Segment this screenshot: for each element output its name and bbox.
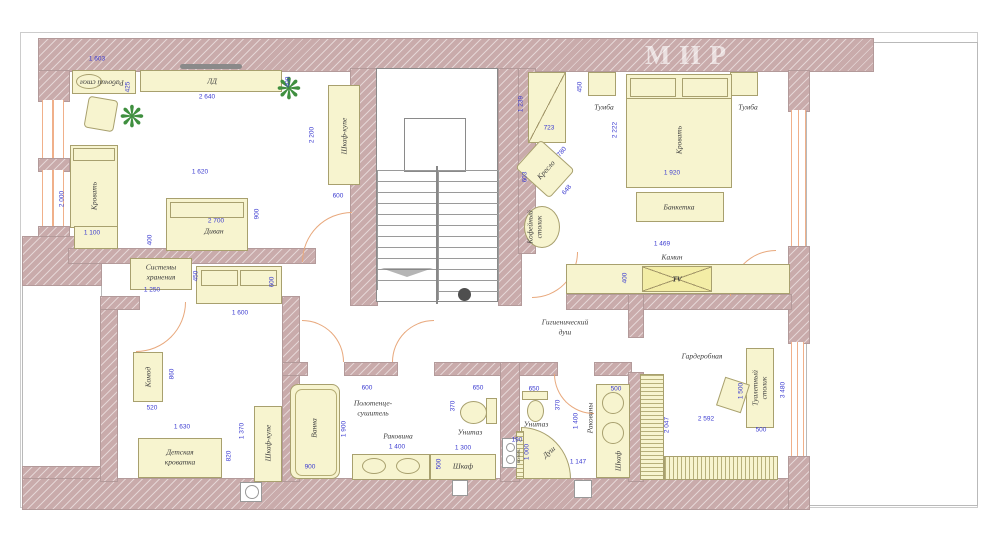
dimension-label: 1 603	[89, 56, 105, 63]
wardrobe-room-label: Гардеробная	[682, 351, 723, 360]
fireplace-label: Камин	[662, 252, 683, 261]
stair-landing-opening	[404, 118, 466, 172]
dimension-label: 520	[147, 405, 158, 412]
dimension-label: 1 100	[84, 230, 100, 237]
office-chair	[83, 96, 118, 133]
dimension-label: 600	[362, 385, 373, 392]
terrace-left	[22, 284, 102, 468]
washer-circle	[506, 455, 515, 464]
storage-label-1: Системы	[146, 262, 177, 271]
coffee-table-label: Кофейный столик	[526, 210, 545, 243]
dimension-label: 1 147	[570, 459, 586, 466]
dimension-label: 2 200	[309, 127, 316, 143]
bed-room1-pillow	[73, 148, 115, 161]
dimension-label: 2 640	[199, 94, 215, 101]
sink-label: Раковина	[383, 431, 413, 440]
sinks-label: Раковины	[585, 403, 594, 434]
dimension-label: 860	[169, 369, 176, 380]
dresser-label: Комод	[143, 367, 152, 387]
shower-cabinet-label: Шкаф	[613, 451, 622, 471]
wardrobe-strip-bottom	[664, 456, 778, 480]
kids-sofa-cushion	[201, 270, 238, 286]
wall-bath-top-b	[344, 362, 398, 376]
wall-master-bottom	[566, 294, 792, 310]
dimension-label: 723	[544, 125, 555, 132]
vent-fixture	[452, 480, 468, 496]
dimension-label: 1 300	[455, 445, 471, 452]
wall-wardrobe-left-a	[628, 294, 644, 338]
window-right-bedroom	[791, 110, 806, 246]
dimension-label: 1 400	[573, 413, 580, 429]
wall-right-c	[788, 456, 810, 510]
vent-circle	[245, 485, 259, 499]
bed-master-blanket-line	[626, 98, 732, 99]
wall-kids-left	[100, 296, 118, 482]
dimension-label: 370	[450, 401, 457, 412]
crib-label-2: кроватка	[165, 457, 195, 466]
dimension-label: 1 000	[524, 444, 531, 460]
dimension-label: 190	[512, 437, 523, 444]
dimension-label: 1 469	[654, 241, 670, 248]
bench-label: Банкетка	[664, 202, 695, 211]
toilet-label: Унитаз	[458, 427, 483, 436]
nightstand-left	[588, 72, 616, 96]
crib-label-1: Детская	[166, 447, 193, 456]
vanity-label-line1: Туалетный	[751, 370, 760, 406]
wall-shower-top-b	[594, 362, 632, 376]
tv-screen	[180, 64, 242, 69]
dimension-label: 400	[285, 77, 292, 88]
sink-bowl	[362, 458, 386, 474]
bathtub-label: Ванна	[309, 418, 318, 438]
window-left-1	[42, 100, 64, 158]
dimension-label: 603	[522, 172, 529, 183]
plant-icon: ❋	[119, 103, 144, 133]
wardrobe-room1-label: Шкаф-купе	[339, 118, 348, 155]
wall-bath-top-a	[282, 362, 308, 376]
wall-left-a	[38, 70, 70, 102]
dimension-label: 2 592	[698, 416, 714, 423]
stair-flight-right	[438, 170, 499, 300]
stair-newel-post	[458, 288, 471, 301]
wall-bottom	[22, 478, 808, 510]
dimension-label: 425	[125, 82, 132, 93]
wardrobe-strip-left	[640, 374, 664, 480]
bed-master-pillow	[682, 78, 728, 97]
watermark: МИР	[645, 40, 735, 71]
dimension-label: 3 480	[780, 382, 787, 398]
dimension-label: 500	[756, 427, 767, 434]
dimension-label: 1 900	[341, 421, 348, 437]
dimension-label: 900	[305, 464, 316, 471]
dimension-label: 1 400	[389, 444, 405, 451]
round-sink	[602, 392, 624, 414]
dimension-label: 370	[555, 400, 562, 411]
wall-kids-top-stub	[100, 296, 140, 310]
sink-bowl	[396, 458, 420, 474]
coffee-table-label-line2: столик	[535, 210, 544, 243]
stair-direction-arrow-icon	[381, 268, 433, 277]
dimension-label: 1 370	[239, 423, 246, 439]
vanity-label-line2: столик	[760, 370, 769, 406]
dimension-label: 2 047	[664, 417, 671, 433]
towel-dryer-label-1: Полотенце-	[354, 398, 392, 407]
window-right-wardrobe	[791, 342, 804, 456]
toilet-tank	[486, 398, 497, 424]
dimension-label: 2 222	[612, 122, 619, 138]
vanity-table-label: Туалетный столик	[751, 370, 770, 406]
bed-master-label: Кровать	[674, 126, 683, 154]
dimension-label: 1 250	[144, 287, 160, 294]
bed-room1-label: Кровать	[89, 182, 98, 210]
dimension-label: 1 630	[174, 424, 190, 431]
dimension-label: 650	[529, 386, 540, 393]
nightstand-right-label: Тумба	[738, 102, 757, 111]
dimension-label: 1 920	[664, 170, 680, 177]
coffee-table-label-line1: Кофейный	[526, 210, 535, 243]
wardrobe-kids-label: Шкаф-купе	[263, 425, 272, 462]
bed-master-pillow	[630, 78, 676, 97]
dimension-label: 650	[473, 385, 484, 392]
hygienic-shower-label-1: Гигиенический	[542, 317, 589, 326]
dimension-label: 450	[577, 82, 584, 93]
toilet-bowl	[460, 401, 487, 424]
tv-label: TV	[672, 274, 682, 283]
toilet2-label: Унитаз	[524, 419, 549, 428]
dimension-label: 500	[611, 386, 622, 393]
desk-label: Рабочий стол	[80, 78, 124, 87]
sofa-label: Диван	[204, 226, 223, 235]
towel-dryer-label-2: сушитель	[357, 408, 388, 417]
dimension-label: 900	[254, 209, 261, 220]
dimension-label: 500	[436, 459, 443, 470]
dimension-label: 600	[269, 277, 276, 288]
vent-fixture	[574, 480, 592, 498]
radiator-window-unit	[528, 72, 566, 143]
wall-top	[38, 38, 874, 72]
tv-console-label: ЛД	[207, 76, 217, 85]
sofa-back	[170, 202, 244, 218]
washer-circle	[506, 443, 515, 452]
floor-plan: ❋ ❋ Рабочий стол ЛД Шкаф-купе К	[0, 0, 1000, 538]
wall-shower-top-a	[518, 362, 558, 376]
terrace-right	[806, 42, 978, 506]
dimension-label: 1 500	[738, 383, 745, 399]
wall-right-a	[788, 70, 810, 112]
storage-label-2: хранения	[147, 272, 176, 281]
dimension-label: 2 700	[208, 218, 224, 225]
dimension-label: 450	[193, 271, 200, 282]
stair-divider	[436, 166, 438, 304]
dimension-label: 1 600	[232, 310, 248, 317]
hygienic-shower-label-2: душ	[559, 327, 572, 336]
dimension-label: 1 239	[518, 96, 525, 112]
dimension-label: 400	[622, 273, 629, 284]
nightstand-right	[730, 72, 758, 96]
nightstand-left-label: Тумба	[594, 102, 613, 111]
dimension-label: 600	[333, 193, 344, 200]
bath-cabinet-label: Шкаф	[453, 461, 473, 470]
dimension-label: 2 000	[59, 191, 66, 207]
round-sink	[602, 422, 624, 444]
dimension-label: 820	[226, 451, 233, 462]
dimension-label: 1 620	[192, 169, 208, 176]
dimension-label: 400	[147, 235, 154, 246]
towel-rail-label: полот.	[517, 449, 523, 464]
